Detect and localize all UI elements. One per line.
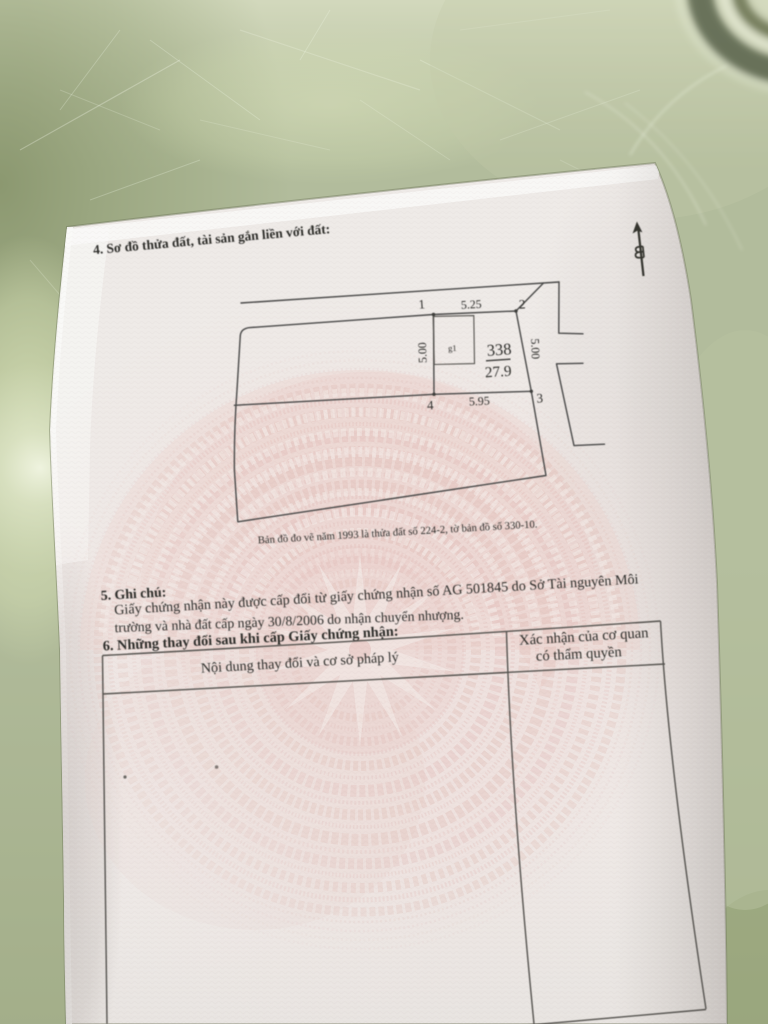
svg-text:338: 338: [486, 339, 512, 360]
svg-text:1: 1: [418, 296, 426, 311]
svg-text:3: 3: [536, 390, 543, 405]
svg-text:5.95: 5.95: [469, 393, 491, 408]
svg-text:27.9: 27.9: [484, 363, 512, 382]
svg-text:5.00: 5.00: [415, 342, 430, 363]
svg-text:5.25: 5.25: [461, 297, 482, 312]
svg-text:2: 2: [518, 296, 526, 311]
svg-text:4: 4: [427, 397, 435, 412]
svg-text:5.00: 5.00: [528, 338, 543, 359]
svg-text:g1: g1: [448, 343, 457, 353]
